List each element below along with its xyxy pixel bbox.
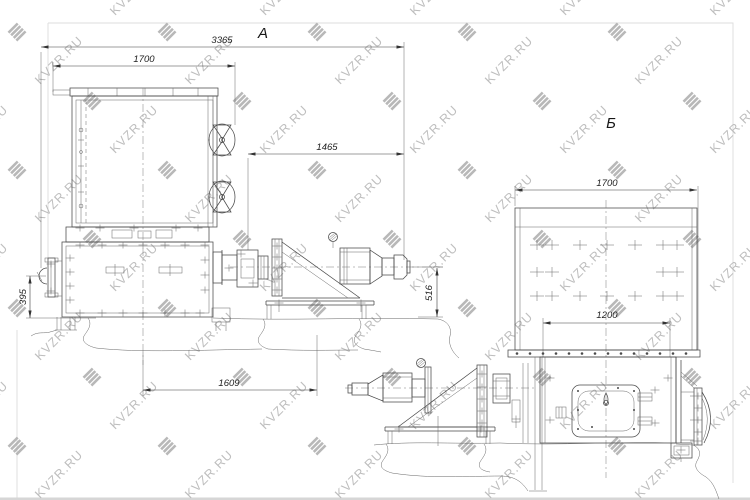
view-b-label: Б — [606, 115, 616, 132]
kvzr-stripes-logo-icon — [9, 24, 26, 41]
watermark-text: KVZR.RU — [707, 378, 750, 432]
dim-1200: 1200 — [596, 310, 618, 321]
flange-b — [508, 350, 700, 357]
watermark-text: KVZR.RU — [482, 33, 536, 87]
watermark-text: KVZR.RU — [407, 102, 461, 156]
dim-1609: 1609 — [218, 378, 240, 389]
watermark-text: KVZR.RU — [32, 171, 86, 225]
watermark-text: KVZR.RU — [482, 309, 536, 363]
kvzr-stripes-logo-icon — [84, 369, 101, 386]
dim-3365: 3365 — [211, 35, 233, 46]
watermark-text: KVZR.RU — [557, 0, 611, 18]
dim-1700-b: 1700 — [596, 178, 618, 189]
watermark-text: KVZR.RU — [107, 378, 161, 432]
technical-drawing-svg: KVZR.RUKVZR.RUKVZR.RUKVZR.RUKVZR.RUKVZR.… — [0, 0, 750, 500]
kvzr-stripes-logo-icon — [609, 24, 626, 41]
ground-break-lines-a — [31, 317, 459, 358]
watermark-text: KVZR.RU — [0, 240, 11, 294]
kvzr-stripes-logo-icon — [459, 162, 476, 179]
watermark-text: KVZR.RU — [332, 309, 386, 363]
lower-box-b — [540, 357, 676, 443]
fan-top — [208, 124, 235, 156]
kvzr-stripes-logo-icon — [684, 93, 701, 110]
watermark-text: KVZR.RU — [632, 33, 686, 87]
watermark-text: KVZR.RU — [32, 447, 86, 500]
kvzr-stripes-logo-icon — [9, 162, 26, 179]
watermark-text: KVZR.RU — [32, 33, 86, 87]
watermark-text: KVZR.RU — [107, 102, 161, 156]
view-a-label: А — [257, 25, 268, 42]
watermark-text: KVZR.RU — [707, 102, 750, 156]
watermark-text: KVZR.RU — [557, 102, 611, 156]
watermark-text: KVZR.RU — [257, 102, 311, 156]
kvzr-stripes-logo-icon — [159, 24, 176, 41]
watermark-text: KVZR.RU — [332, 171, 386, 225]
kvzr-stripes-logo-icon — [309, 300, 326, 317]
watermark-layer: KVZR.RUKVZR.RUKVZR.RUKVZR.RUKVZR.RUKVZR.… — [0, 0, 750, 500]
kvzr-stripes-logo-icon — [309, 24, 326, 41]
watermark-text: KVZR.RU — [0, 378, 11, 432]
dim-1465: 1465 — [316, 142, 338, 153]
left-bracket — [37, 258, 62, 297]
kvzr-stripes-logo-icon — [384, 231, 401, 248]
kvzr-stripes-logo-icon — [309, 162, 326, 179]
kvzr-stripes-logo-icon — [234, 93, 251, 110]
kvzr-stripes-logo-icon — [609, 162, 626, 179]
dim-395: 395 — [18, 288, 29, 305]
watermark-text: KVZR.RU — [257, 0, 311, 18]
kvzr-stripes-logo-icon — [684, 369, 701, 386]
kvzr-stripes-logo-icon — [459, 300, 476, 317]
dim-1700-a: 1700 — [133, 54, 155, 65]
watermark-text: KVZR.RU — [707, 240, 750, 294]
watermark-text: KVZR.RU — [332, 447, 386, 500]
watermark-text: KVZR.RU — [0, 0, 11, 18]
dimension-base-width: 1609 — [143, 335, 317, 396]
watermark-text: KVZR.RU — [257, 378, 311, 432]
drive-assembly-a — [230, 233, 443, 320]
dim-516: 516 — [424, 284, 435, 301]
watermark-text: KVZR.RU — [107, 0, 161, 18]
right-assembly-b — [671, 357, 711, 462]
drawing-canvas: KVZR.RUKVZR.RUKVZR.RUKVZR.RUKVZR.RUKVZR.… — [0, 0, 750, 500]
watermark-text: KVZR.RU — [632, 171, 686, 225]
kvzr-stripes-logo-icon — [534, 93, 551, 110]
watermark-text: KVZR.RU — [557, 240, 611, 294]
kvzr-stripes-logo-icon — [609, 438, 626, 455]
watermark-text: KVZR.RU — [107, 240, 161, 294]
kvzr-stripes-logo-icon — [459, 24, 476, 41]
kvzr-stripes-logo-icon — [309, 438, 326, 455]
kvzr-stripes-logo-icon — [159, 300, 176, 317]
watermark-text: KVZR.RU — [632, 309, 686, 363]
watermark-text: KVZR.RU — [707, 0, 750, 18]
view-a-group: А 3365 1700 1465 395 516 — [18, 25, 459, 396]
watermark-text: KVZR.RU — [332, 33, 386, 87]
watermark-text: KVZR.RU — [557, 378, 611, 432]
kvzr-stripes-logo-icon — [459, 438, 476, 455]
watermark-text: KVZR.RU — [482, 171, 536, 225]
view-b-group: Б 1700 1200 — [345, 115, 719, 499]
watermark-text: KVZR.RU — [257, 240, 311, 294]
watermark-text: KVZR.RU — [482, 447, 536, 500]
kvzr-stripes-logo-icon — [159, 438, 176, 455]
watermark-text: KVZR.RU — [32, 309, 86, 363]
watermark-text: KVZR.RU — [182, 309, 236, 363]
watermark-text: KVZR.RU — [632, 447, 686, 500]
watermark-text: KVZR.RU — [0, 102, 11, 156]
watermark-text: KVZR.RU — [182, 447, 236, 500]
dimension-right-width: 1465 — [248, 142, 404, 250]
kvzr-stripes-logo-icon — [384, 93, 401, 110]
watermark-text: KVZR.RU — [407, 0, 461, 18]
kvzr-stripes-logo-icon — [159, 162, 176, 179]
